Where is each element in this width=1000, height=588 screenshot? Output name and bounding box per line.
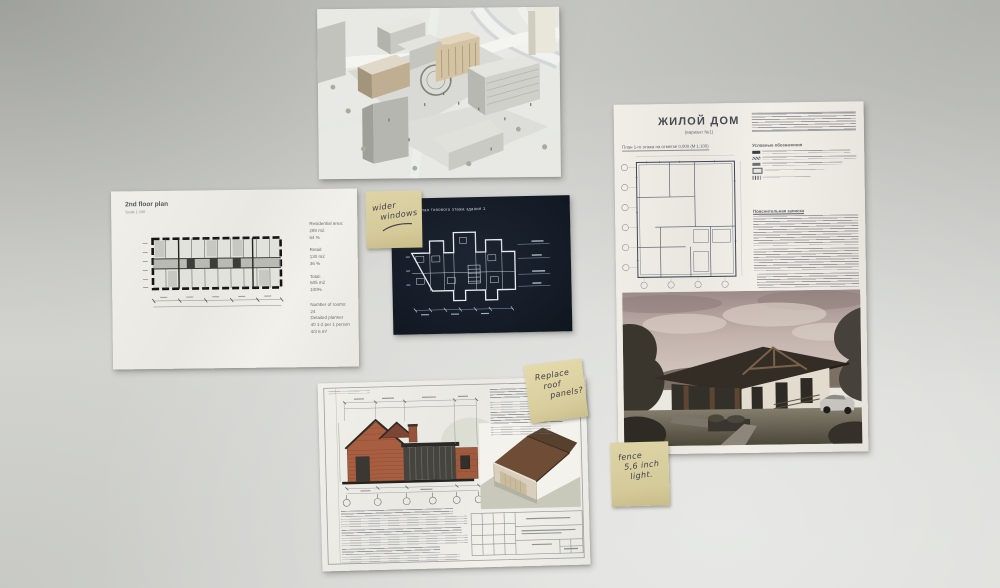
house-plan-caption: План 1-го этажа на отметке 0,000 (М 1:10…: [622, 143, 709, 151]
urban-render-graphic: [317, 7, 561, 180]
house-notes-title: Пояснительная записка: [753, 208, 804, 214]
floor-plan-sheet: 2nd floor plan Scale 1:100: [111, 189, 359, 370]
info-line: 100%: [310, 287, 352, 294]
elevation-notes-block: [341, 508, 470, 563]
legend-swatch: [752, 168, 762, 174]
urban-render-photo: [317, 7, 561, 180]
sticky-note-wider-windows: wider windows: [366, 191, 423, 249]
legend-text-line: [762, 150, 850, 154]
house-photo: [622, 289, 862, 446]
legend-swatch: [752, 151, 760, 155]
info-line: 36 %: [310, 260, 352, 267]
legend-text-line: [763, 176, 811, 179]
info-line: 4/3 6 m²: [311, 328, 353, 335]
legend-text-line: [762, 162, 842, 166]
legend-row: [752, 161, 856, 166]
sticky-note-replace-roof: Replace roof panels?: [524, 359, 589, 424]
house-sheet-title: ЖИЛОЙ ДОМ: [634, 115, 764, 129]
house-legend: [752, 149, 856, 181]
legend-swatch: [752, 156, 760, 160]
house-notes-paragraph: [753, 214, 858, 245]
legend-text-line: [762, 156, 856, 160]
floor-plan-info-block: Residential area: 289 m2 64 % Retail: 13…: [309, 221, 352, 336]
house-notes-paragraph: [754, 247, 859, 270]
legend-row: [752, 155, 856, 160]
legend-text-line: [764, 169, 824, 172]
legend-swatch: [753, 176, 761, 180]
info-line: Number of rooms: 24: [310, 301, 352, 315]
sticky-note-fence-light: fence 5,6 inch light.: [610, 441, 670, 506]
legend-row: [752, 167, 856, 174]
house-legend-title: Условные обозначения: [752, 142, 802, 148]
legend-row: [753, 175, 857, 180]
house-notes-paragraph: [757, 272, 859, 287]
info-line: 64 %: [309, 234, 351, 241]
info-line: 40 1-2 per 1 person: [311, 322, 353, 329]
house-sheet-subtitle: (вариант №1): [634, 129, 764, 136]
wall-photo-scene: 2nd floor plan Scale 1:100: [0, 0, 1000, 588]
legend-row: [752, 149, 856, 154]
house-project-sheet: ЖИЛОЙ ДОМ (вариант №1) План 1-го этажа н…: [614, 101, 869, 454]
house-sheet-stamp: [752, 111, 856, 131]
legend-swatch: [752, 162, 760, 166]
